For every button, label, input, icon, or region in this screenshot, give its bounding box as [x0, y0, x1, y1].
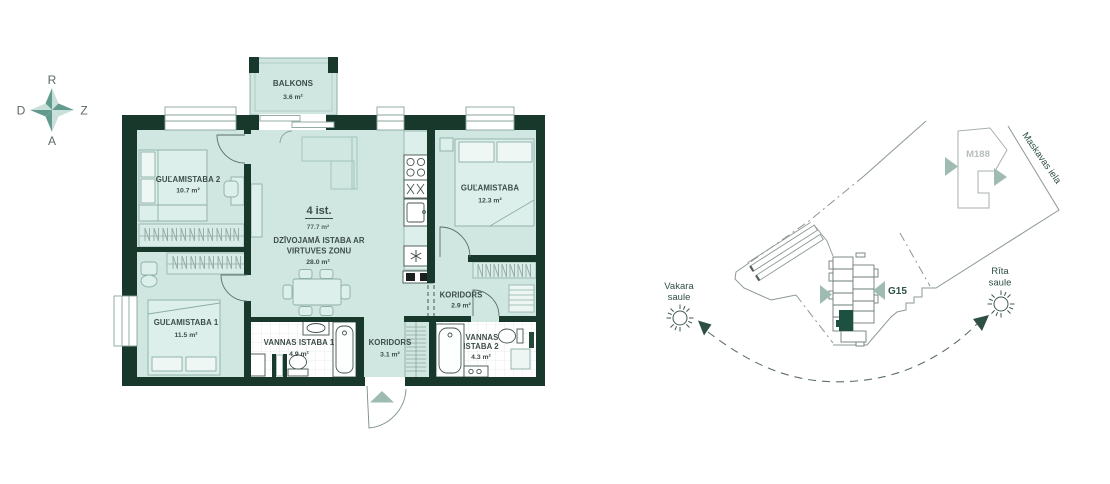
svg-text:BALKONS: BALKONS	[273, 79, 314, 88]
svg-text:12.3 m²: 12.3 m²	[478, 198, 502, 205]
svg-text:KORIDORS: KORIDORS	[440, 291, 483, 300]
svg-text:GUĽAMISTABA 2: GUĽAMISTABA 2	[156, 175, 221, 184]
svg-text:3.1 m²: 3.1 m²	[380, 352, 400, 359]
svg-text:2.9 m²: 2.9 m²	[451, 303, 471, 310]
svg-text:VANNAS ISTABA 1: VANNAS ISTABA 1	[264, 338, 335, 347]
svg-text:Rīta: Rīta	[991, 266, 1009, 277]
svg-text:GUĽAMISTABA: GUĽAMISTABA	[461, 184, 519, 193]
svg-text:VIRTUVES ZONU: VIRTUVES ZONU	[287, 247, 352, 256]
svg-text:28.0 m²: 28.0 m²	[306, 259, 330, 266]
svg-text:saule: saule	[668, 292, 691, 303]
svg-text:Z: Z	[80, 104, 87, 118]
svg-text:4.3 m²: 4.3 m²	[471, 354, 491, 361]
svg-text:4.9 m²: 4.9 m²	[289, 351, 309, 358]
svg-text:G15: G15	[888, 286, 907, 297]
svg-text:3.6 m²: 3.6 m²	[283, 94, 303, 101]
svg-text:saule: saule	[989, 278, 1012, 289]
svg-text:A: A	[48, 134, 56, 148]
svg-text:KORIDORS: KORIDORS	[369, 338, 412, 347]
svg-text:77.7 m²: 77.7 m²	[307, 224, 330, 231]
svg-text:Vakara: Vakara	[664, 281, 694, 292]
svg-text:11.5 m²: 11.5 m²	[174, 332, 198, 339]
svg-text:R: R	[48, 73, 57, 87]
svg-text:D: D	[17, 104, 26, 118]
svg-text:M188: M188	[966, 149, 990, 160]
svg-text:Maskavas iela: Maskavas iela	[1020, 130, 1064, 186]
svg-text:10.7 m²: 10.7 m²	[176, 188, 200, 195]
svg-text:DZĪVOJAMĀ ISTABA AR: DZĪVOJAMĀ ISTABA AR	[273, 236, 365, 245]
svg-text:4 ist.: 4 ist.	[306, 205, 331, 217]
svg-text:GUĽAMISTABA 1: GUĽAMISTABA 1	[154, 318, 219, 327]
svg-text:VANNAS: VANNAS	[466, 333, 499, 342]
svg-text:ISTABA 2: ISTABA 2	[463, 342, 499, 351]
